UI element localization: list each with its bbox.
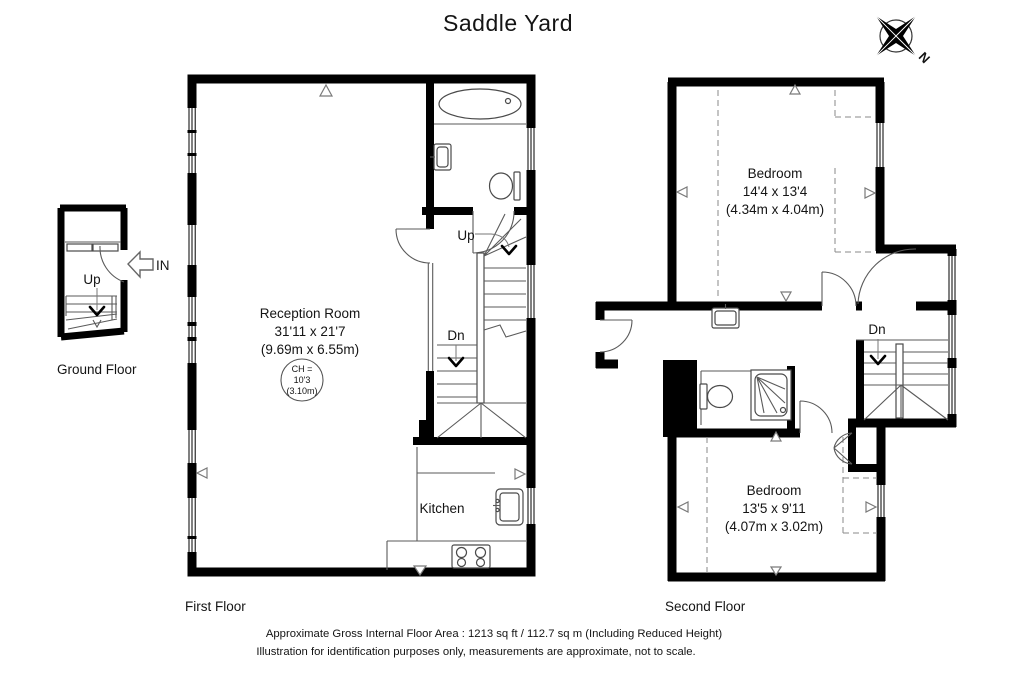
ceiling-height-line1: CH = xyxy=(292,364,313,374)
up-arrow-head xyxy=(502,246,516,254)
toilet-cistern xyxy=(514,172,520,200)
second-floor-label: Second Floor xyxy=(665,599,746,614)
footer-disclaimer: Illustration for identification purposes… xyxy=(256,646,695,658)
kitchen-tap-handle xyxy=(496,508,499,511)
bedroom-back-size-metric: (4.07m x 3.02m) xyxy=(725,519,823,534)
stair-stringer xyxy=(896,344,903,418)
second-floor-dn-label: Dn xyxy=(868,322,885,337)
hob-burner xyxy=(477,559,485,567)
ground-floor-up-label: Up xyxy=(83,272,100,287)
shower-room xyxy=(700,304,791,425)
marker-triangle-down xyxy=(781,292,791,301)
bedroom-back-name: Bedroom xyxy=(747,483,802,498)
stair-treads-lower xyxy=(437,345,477,397)
stair-treads-upper xyxy=(484,268,526,320)
second-floor-interior-walls xyxy=(791,340,881,468)
staircase-ground-floor xyxy=(66,288,117,329)
marker-triangle-up xyxy=(320,85,332,96)
marker-triangle-right xyxy=(865,188,875,198)
bedroom-front-size-metric: (4.34m x 4.04m) xyxy=(726,202,824,217)
page-title: Saddle Yard xyxy=(443,10,573,36)
floorplan-page: Saddle Yard N Up IN Ground Floor xyxy=(0,0,1020,680)
bedroom-back-size-imperial: 13'5 x 9'11 xyxy=(742,501,805,516)
ground-floor-plan: Up IN Ground Floor xyxy=(57,208,170,377)
first-floor-up-label: Up xyxy=(457,228,474,243)
bathroom-sink-basin xyxy=(437,147,448,167)
stair-treads xyxy=(66,296,117,329)
staircase-first-floor xyxy=(437,214,526,438)
entrance-door-panel xyxy=(67,244,92,251)
toilet-cistern xyxy=(700,384,707,409)
toilet xyxy=(490,173,513,199)
staircase-second-floor xyxy=(856,339,948,420)
first-floor-dn-label: Dn xyxy=(447,328,464,343)
stair-screen-glazing xyxy=(428,263,432,371)
entrance-door-panel xyxy=(93,244,118,251)
footer-area-note: Approximate Gross Internal Floor Area : … xyxy=(266,628,723,640)
bedroom-back-text: Bedroom 13'5 x 9'11 (4.07m x 3.02m) xyxy=(725,483,823,534)
bedroom-front-size-imperial: 14'4 x 13'4 xyxy=(743,184,808,199)
second-floor-windows xyxy=(876,123,957,517)
hall-door-arc xyxy=(396,229,430,263)
reception-room-size-imperial: 31'11 x 21'7 xyxy=(275,324,346,339)
stair-treads xyxy=(864,352,948,385)
hob-burner xyxy=(458,559,466,567)
ceiling-height-line3: (3.10m) xyxy=(286,386,317,396)
entrance-in-arrow-icon xyxy=(128,252,153,277)
marker-triangle-right xyxy=(515,469,525,479)
first-floor-interior-walls xyxy=(413,79,531,441)
kitchen-tap-handle xyxy=(496,499,499,502)
first-floor-plan: Up Dn Reception Room 31'11 x 21'7 (9.69m… xyxy=(185,79,536,614)
landing-door-arc xyxy=(858,249,916,304)
marker-triangle-left xyxy=(677,187,687,197)
bedroom-front-text: Bedroom 14'4 x 13'4 (4.34m x 4.04m) xyxy=(726,166,824,217)
ceiling-height-line2: 10'3 xyxy=(294,375,311,385)
stair-stringer xyxy=(477,253,484,403)
shower-room-sink-basin xyxy=(715,311,736,325)
compass-north-label: N xyxy=(916,49,933,66)
eaves-door-arc xyxy=(600,320,632,352)
ground-floor-label: Ground Floor xyxy=(57,362,137,377)
toilet xyxy=(708,386,733,408)
floorplan-canvas: Saddle Yard N Up IN Ground Floor xyxy=(0,0,1020,680)
shower-drain xyxy=(781,408,786,413)
bedroom-front-name: Bedroom xyxy=(748,166,803,181)
reception-room-text: Reception Room 31'11 x 21'7 (9.69m x 6.5… xyxy=(260,306,361,401)
stair-break-line xyxy=(484,325,526,337)
reception-room-name: Reception Room xyxy=(260,306,361,321)
reception-room-size-metric: (9.69m x 6.55m) xyxy=(261,342,359,357)
hob-burner xyxy=(457,548,467,558)
stair-under-landing xyxy=(437,403,526,438)
bedroom-front-door-arc xyxy=(822,272,856,306)
first-floor-label: First Floor xyxy=(185,599,246,614)
footer-notes: Approximate Gross Internal Floor Area : … xyxy=(256,628,722,658)
second-floor-plan: Dn Bedroom 14'4 x 13'4 (4.34m x 4.04m) B… xyxy=(596,82,957,614)
marker-triangle-right xyxy=(866,502,876,512)
compass-rose: N xyxy=(876,16,933,66)
kitchen-label: Kitchen xyxy=(419,501,464,516)
marker-triangle-left xyxy=(197,468,207,478)
entrance-in-label: IN xyxy=(156,258,170,273)
second-floor-wall-block xyxy=(663,360,697,437)
bathtub-drain xyxy=(506,99,511,104)
compass-star-facets xyxy=(876,16,916,56)
hob-burner xyxy=(476,548,486,558)
bedroom-back-door-arc xyxy=(800,401,832,433)
marker-triangle-left xyxy=(678,502,688,512)
stair-landing-lines xyxy=(864,385,948,420)
kitchen-sink-basin xyxy=(500,493,519,521)
